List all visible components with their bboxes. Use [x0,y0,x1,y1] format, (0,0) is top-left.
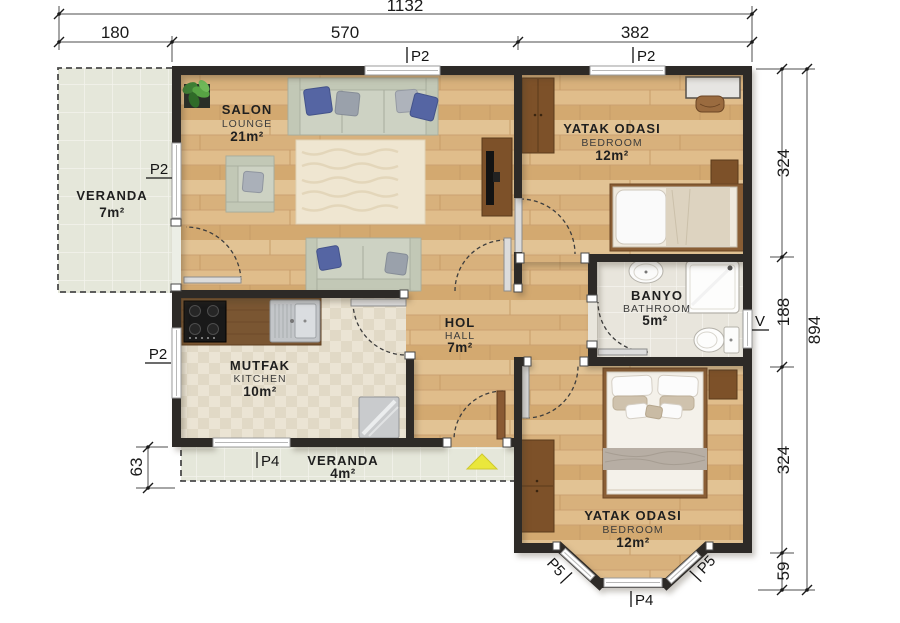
svg-text:P2: P2 [411,48,429,65]
dim-left-seg-63: 63 [127,458,146,477]
shower [686,261,739,313]
window-kitchen-left [172,328,181,398]
svg-text:12m²: 12m² [595,148,629,163]
svg-text:7m²: 7m² [447,340,473,355]
svg-text:P4: P4 [635,592,653,609]
svg-text:7m²: 7m² [99,205,125,220]
rug [296,140,425,224]
opening-veranda-door [172,226,181,284]
dim-right-seg-324b: 324 [774,446,793,474]
label-window-bathroom: V [752,313,769,330]
window-bathroom-right [743,310,752,348]
svg-text:10m²: 10m² [243,384,277,399]
label-window-kitchen: P2 [145,346,171,363]
svg-text:HOL: HOL [445,315,475,330]
wardrobe-bedroom-top [522,78,554,153]
dim-right-seg-188: 188 [774,298,793,326]
stove [184,301,226,342]
svg-text:5m²: 5m² [642,313,668,328]
svg-text:4m²: 4m² [330,466,356,481]
svg-text:V: V [755,313,765,330]
svg-text:P5: P5 [543,555,568,580]
toilet [694,327,739,353]
dim-top-seg-180: 180 [101,23,129,42]
room-label-hall: HOL HALL 7m² [445,315,475,355]
svg-text:SALON: SALON [222,102,273,117]
floor-plan-drawing: 1132 180 570 382 324 188 324 59 894 63 [0,0,900,623]
kitchen-sink [270,300,320,342]
svg-text:P2: P2 [150,161,168,178]
svg-text:12m²: 12m² [616,535,650,550]
label-window-veranda: P2 [146,161,172,178]
window-veranda-left [172,143,181,218]
label-window-salon: P2 [407,47,429,65]
kitchen-counter [181,298,321,345]
window-veranda-bottom-door [213,438,290,447]
opening-bathroom-door [588,301,597,346]
armchair [226,156,274,212]
svg-text:21m²: 21m² [230,129,264,144]
dim-top-total: 1132 [387,0,424,15]
svg-text:P2: P2 [637,48,655,65]
svg-text:YATAK ODASI: YATAK ODASI [563,121,660,136]
nightstand-bedroom-bottom [709,370,737,399]
window-salon-top [365,66,440,75]
dimension-left: 63 [127,442,175,493]
label-window-bedroom-top: P2 [633,47,655,65]
svg-text:P4: P4 [261,453,279,470]
window-bedroom-top [590,66,665,75]
dim-right-total: 894 [805,316,824,344]
svg-text:MUTFAK: MUTFAK [230,358,290,373]
dim-right-seg-59: 59 [774,562,793,581]
dim-top-seg-570: 570 [331,23,359,42]
svg-text:BANYO: BANYO [631,288,683,303]
svg-text:P2: P2 [149,346,167,363]
bed-double [603,368,707,498]
refrigerator [359,397,399,438]
wardrobe-bedroom-bottom [520,440,554,532]
window-bay-bottom [604,578,662,587]
svg-text:VERANDA: VERANDA [76,188,147,203]
dim-top-seg-382: 382 [621,23,649,42]
svg-text:YATAK ODASI: YATAK ODASI [584,508,681,523]
nightstand-bedroom-top [711,160,738,186]
label-door-veranda: P4 [257,452,279,470]
floor-plan-canvas: 1132 180 570 382 324 188 324 59 894 63 [0,0,900,623]
label-window-bay-center: P4 [631,591,653,609]
floor-veranda-left [58,68,172,293]
bed-single [610,184,745,251]
dim-right-seg-324a: 324 [774,149,793,177]
opening-bedroom-top-door [524,254,582,262]
sofa-large [288,78,439,135]
sofa-small [306,238,421,291]
tv-unit [482,138,512,216]
